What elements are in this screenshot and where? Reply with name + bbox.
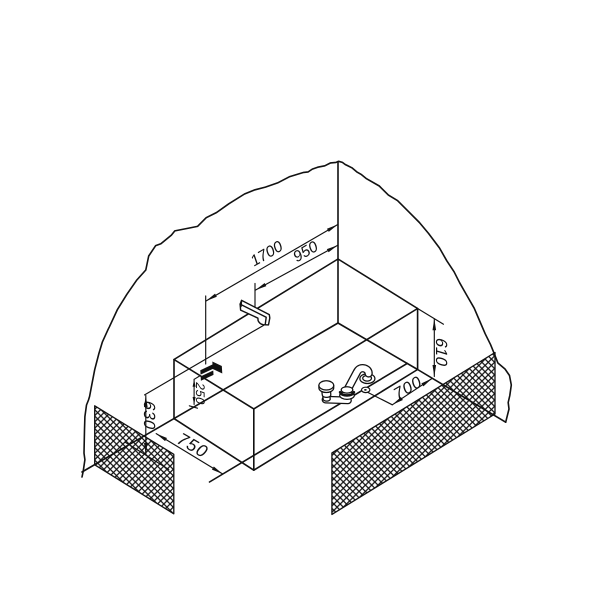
svg-text:250: 250 <box>193 381 207 405</box>
svg-text:750: 750 <box>174 429 212 463</box>
svg-text:950: 950 <box>290 238 321 266</box>
svg-text:610: 610 <box>432 337 450 367</box>
svg-text:630: 630 <box>140 400 158 430</box>
